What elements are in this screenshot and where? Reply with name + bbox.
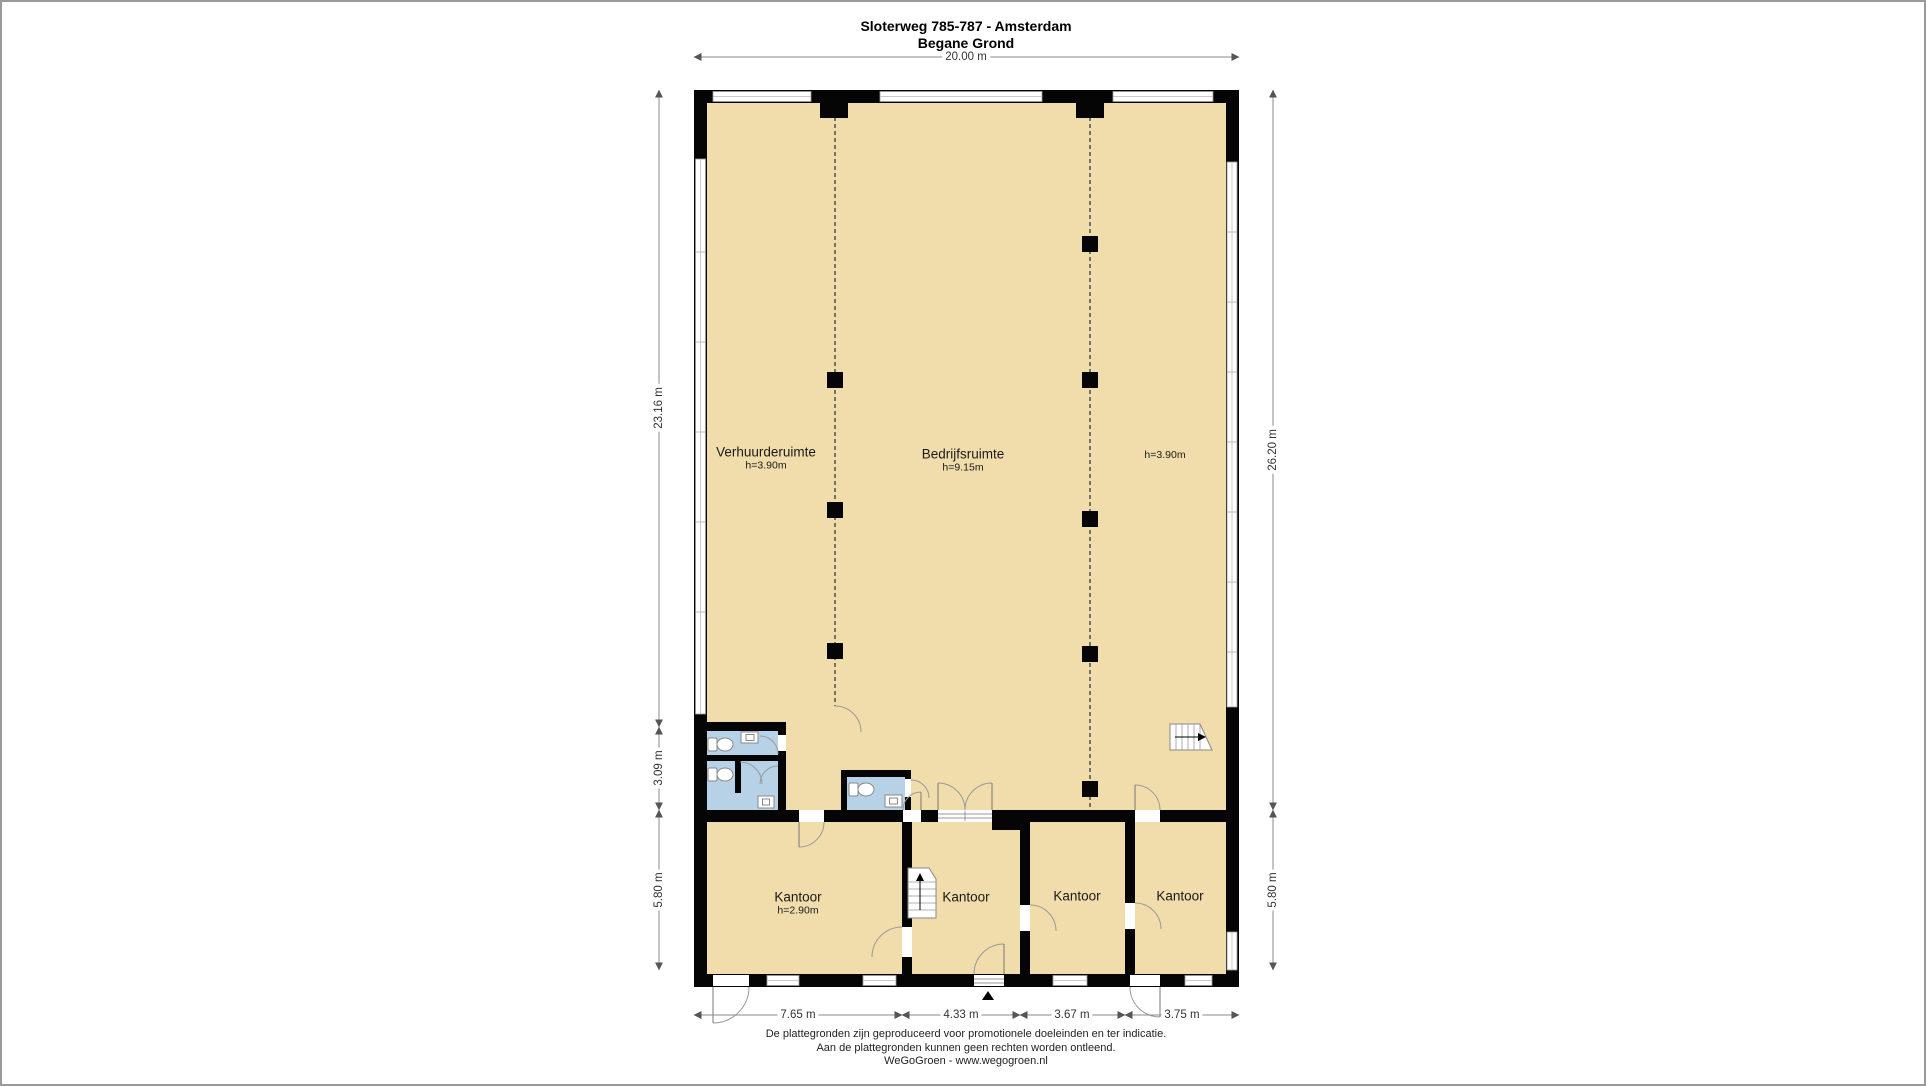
disclaimer-line-1: De plattegronden zijn geproduceerd voor … [766,1028,1167,1042]
dim-right-lower-label: 5.80 m [1267,869,1279,910]
plan-title: Sloterweg 785-787 - Amsterdam [860,18,1071,35]
room-label-kantoor-1: Kantoor h=2.90m [774,890,821,917]
dim-left-upper-label: 23.16 m [653,384,665,432]
room-height: h=2.90m [774,905,821,917]
dim-left-middle-label: 3.09 m [653,747,665,788]
room-height: h=9.15m [922,462,1005,474]
disclaimer: De plattegronden zijn geproduceerd voor … [766,1028,1167,1069]
room-name: Kantoor [1156,889,1203,904]
room-name: Kantoor [774,890,821,905]
floorplan-graphic [2,2,1926,1086]
room-label-kantoor-3: Kantoor [1053,889,1100,904]
room-label-right-zone: h=3.90m [1144,449,1185,461]
room-label-verhuurderuimte: Verhuurderuimte h=3.90m [716,445,816,472]
dim-bottom-label-4: 3.75 m [1161,1009,1202,1021]
disclaimer-line-3: WeGoGroen - www.wegogroen.nl [766,1055,1167,1069]
room-label-bedrijfsruimte: Bedrijfsruimte h=9.15m [922,447,1005,474]
plan-subtitle: Begane Grond [860,35,1071,52]
dim-left-lower-label: 5.80 m [653,869,665,910]
disclaimer-line-2: Aan de plattegronden kunnen geen rechten… [766,1042,1167,1056]
dim-bottom-label-1: 7.65 m [777,1009,818,1021]
dim-right-upper-label: 26.20 m [1267,426,1279,474]
room-label-kantoor-2: Kantoor [942,890,989,905]
room-label-kantoor-4: Kantoor [1156,889,1203,904]
room-name: Kantoor [1053,889,1100,904]
floorplan-page: Sloterweg 785-787 - Amsterdam Begane Gro… [0,0,1926,1086]
dim-top-label: 20.00 m [942,51,990,63]
room-name: Kantoor [942,890,989,905]
floor-area [694,90,1239,987]
plan-title-block: Sloterweg 785-787 - Amsterdam Begane Gro… [860,18,1071,52]
dim-bottom-label-3: 3.67 m [1051,1009,1092,1021]
room-name: Verhuurderuimte [716,445,816,460]
room-height: h=3.90m [1144,449,1185,461]
staircase-icon-office [908,868,936,918]
room-height: h=3.90m [716,460,816,472]
entrance-marker [982,991,994,1000]
room-name: Bedrijfsruimte [922,447,1005,462]
dim-bottom-label-2: 4.33 m [940,1009,981,1021]
